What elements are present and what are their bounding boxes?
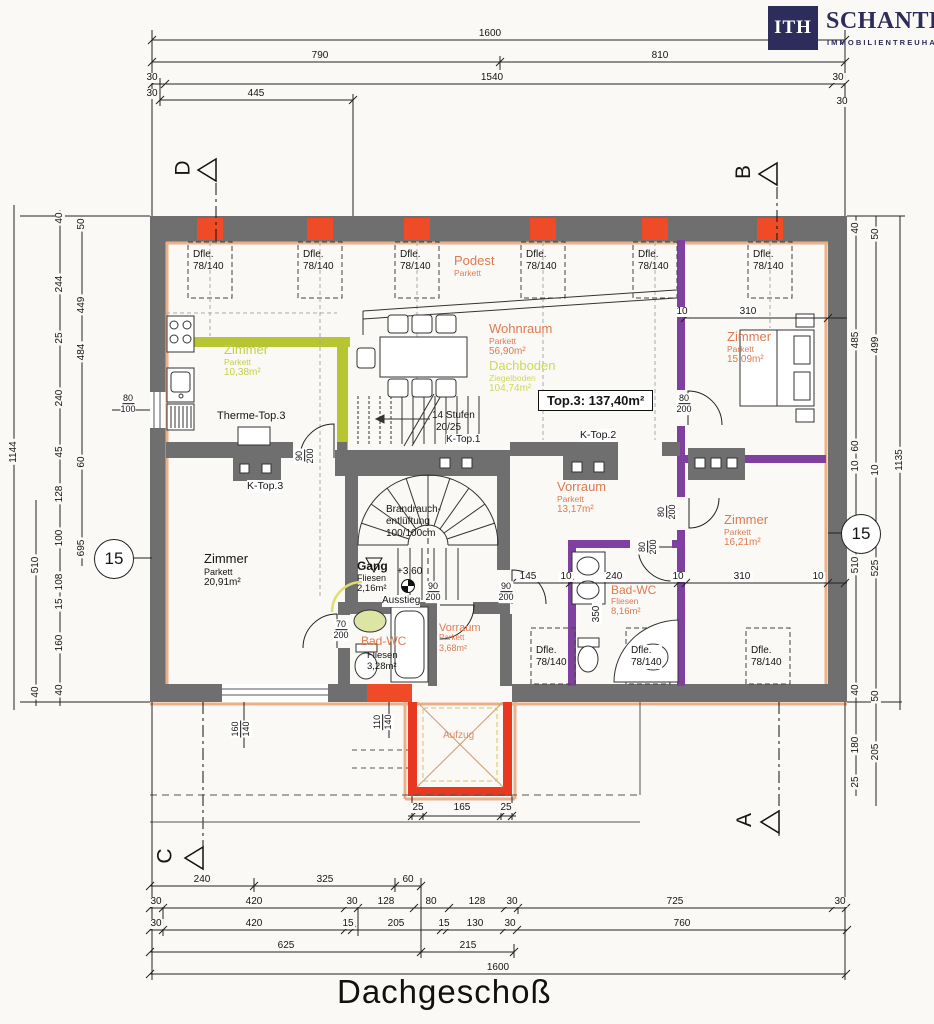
room-label-vorraum-1317: VorraumParkett13,17m² <box>557 480 606 515</box>
dim-label: 625 <box>276 941 297 951</box>
dim-label: 325 <box>315 875 336 885</box>
dim-label: 50 <box>871 688 881 703</box>
window-size-label: 110140 <box>372 714 394 730</box>
logo-name: SCHANTL <box>826 8 934 35</box>
window-label: Dfle.78/140 <box>751 645 782 669</box>
dim-label: 40 <box>31 684 41 699</box>
door-size-label: 90200 <box>294 448 316 463</box>
dimension-lines <box>14 30 905 980</box>
dim-label: 760 <box>672 919 693 929</box>
stairs-label: 14 Stufen20/25 <box>432 410 475 434</box>
ktop2-label: K-Top.2 <box>580 429 616 442</box>
window-label: Dfle.78/140 <box>193 249 224 273</box>
smoke-vent-label: Brandrauch-entlüftung100/100cm <box>386 504 441 540</box>
level-circle-left: 15 <box>94 539 134 579</box>
dim-label: 15 <box>340 919 355 929</box>
dim-label: 128 <box>55 484 65 505</box>
dim-label: 40 <box>851 220 861 235</box>
room-area-label: 3,28m² <box>367 661 397 672</box>
dim-label: 30 <box>148 919 163 929</box>
dim-label: 60 <box>400 875 415 885</box>
dim-label: 350 <box>592 604 602 625</box>
dim-label: 30 <box>832 897 847 907</box>
dim-label: 25 <box>410 803 425 813</box>
dim-label: 510 <box>851 555 861 576</box>
level-circle-right: 15 <box>841 514 881 554</box>
room-label-bad-328: Bad-WC <box>361 635 406 648</box>
room-label-zimmer-2091: ZimmerParkett20,91m² <box>204 552 248 588</box>
dim-label: 810 <box>650 51 671 61</box>
dim-label: 30 <box>830 73 845 83</box>
dim-label: 420 <box>244 919 265 929</box>
logo-mark: ITH <box>768 6 818 50</box>
section-marker-d: D <box>172 160 196 175</box>
dim-label: 30 <box>148 897 163 907</box>
dim-label: 165 <box>452 803 473 813</box>
dim-label: 215 <box>458 941 479 951</box>
window-label: Dfle.78/140 <box>536 645 567 669</box>
window-label: Dfle.78/140 <box>631 645 662 669</box>
dim-label: 484 <box>77 342 87 363</box>
dim-label: 128 <box>376 897 397 907</box>
room-label-podest: PodestParkett <box>454 254 494 278</box>
dim-label: 30 <box>834 97 849 107</box>
dim-label: 510 <box>31 555 41 576</box>
room-label-gang: GangFliesen2,16m² <box>357 560 388 594</box>
door-size-label: 90200 <box>498 581 513 603</box>
dim-label: 449 <box>77 295 87 316</box>
dim-label: 30 <box>144 73 159 83</box>
section-marker-c: C <box>154 848 178 863</box>
dim-label: 30 <box>144 89 159 99</box>
dim-label: 695 <box>77 538 87 559</box>
page-title: Dachgeschoß <box>337 973 552 1011</box>
room-label-bad-816: Bad-WCFliesen8,16m² <box>611 584 656 618</box>
dim-label: 80 <box>423 897 438 907</box>
door-size-label: 90200 <box>425 581 440 603</box>
ktop3-label: K-Top.3 <box>247 480 283 493</box>
dim-label: 45 <box>55 444 65 459</box>
dim-label: 1135 <box>895 447 905 473</box>
door-size-label: 70200 <box>333 619 348 641</box>
section-lines <box>203 183 779 858</box>
ktop1-label: K-Top.1 <box>446 434 480 446</box>
door-size-label: 80200 <box>656 504 678 519</box>
dim-label: 100 <box>55 528 65 549</box>
dim-label: 60 <box>851 438 861 453</box>
window-label: Dfle.78/140 <box>303 249 334 273</box>
floorplan-linework <box>0 0 934 1024</box>
dim-label: 1600 <box>477 29 503 39</box>
dim-label: 40 <box>851 682 861 697</box>
window-label: Dfle.78/140 <box>400 249 431 273</box>
room-label-wohnraum: WohnraumParkett56,90m² <box>489 322 552 357</box>
dim-label: 525 <box>871 558 881 579</box>
door-size-label: 80200 <box>637 539 659 554</box>
dim-label: 25 <box>851 774 861 789</box>
dim-label: 445 <box>246 89 267 99</box>
dim-label: 40 <box>55 210 65 225</box>
dim-label: 30 <box>502 919 517 929</box>
dim-label: 15 <box>436 919 451 929</box>
dim-label: 30 <box>504 897 519 907</box>
dim-label: 10 <box>871 462 881 477</box>
room-label-aufzug: Aufzug <box>443 730 474 742</box>
section-marker-a: A <box>733 813 757 827</box>
room-label-zimmer-1509: ZimmerParkett15,09m² <box>727 330 771 365</box>
dim-label: 725 <box>665 897 686 907</box>
dim-label: 499 <box>871 335 881 356</box>
room-label-zimmer-1038: ZimmerParkett10,38m² <box>224 343 268 378</box>
dim-label: 30 <box>344 897 359 907</box>
dim-label: 1144 <box>9 439 19 465</box>
dim-label: 240 <box>192 875 213 885</box>
window-label: Dfle.78/140 <box>526 249 557 273</box>
dim-label: 420 <box>244 897 265 907</box>
exit-label: Ausstieg <box>382 595 420 607</box>
window-size-label: 80100 <box>120 393 135 415</box>
dim-label: 10 <box>670 572 685 582</box>
dim-label: 10 <box>851 458 861 473</box>
dim-label: 790 <box>310 51 331 61</box>
dim-label: 108 <box>55 572 65 593</box>
room-label-dachboden: DachbodenZiegelboden104,74m² <box>489 359 556 394</box>
dim-label: 15 <box>55 596 65 611</box>
dim-label: 485 <box>851 330 861 351</box>
dim-label: 145 <box>518 572 539 582</box>
dim-label: 244 <box>55 274 65 295</box>
dim-label: 240 <box>55 388 65 409</box>
dim-label: 50 <box>871 226 881 241</box>
room-label-vorraum-368: VorraumParkett3,68m² <box>439 622 481 653</box>
dim-label: 60 <box>77 454 87 469</box>
dim-label: 180 <box>851 735 861 756</box>
dim-label: 130 <box>465 919 486 929</box>
dim-label: 10 <box>674 307 689 317</box>
dim-label: 1540 <box>479 73 505 83</box>
window-label: Dfle.78/140 <box>638 249 669 273</box>
dim-label: 10 <box>558 572 573 582</box>
logo-subtitle: IMMOBILIENTREUHAND <box>827 38 934 47</box>
window-size-label: 160140 <box>230 720 252 737</box>
dim-label: 128 <box>467 897 488 907</box>
dim-label: 10 <box>810 572 825 582</box>
dim-label: 1600 <box>485 963 511 973</box>
therme-label: Therme-Top.3 <box>217 410 285 423</box>
dim-label: 205 <box>871 742 881 763</box>
door-size-label: 80200 <box>676 393 691 415</box>
dim-label: 205 <box>386 919 407 929</box>
terrace-lines <box>150 702 640 822</box>
elevator-cross <box>417 702 503 787</box>
dim-label: 160 <box>55 633 65 654</box>
floorplan-page: ITH SCHANTL IMMOBILIENTREUHAND 1600 790 … <box>0 0 934 1024</box>
dim-label: 40 <box>55 682 65 697</box>
level-label: +3,60 <box>397 566 422 578</box>
dim-label: 25 <box>55 330 65 345</box>
dim-label: 50 <box>77 216 87 231</box>
unit-area-box: Top.3: 137,40m² <box>538 390 653 411</box>
room-floor-label: Fliesen <box>367 650 398 661</box>
elevator-walls <box>408 702 512 796</box>
dim-label: 240 <box>604 572 625 582</box>
section-marker-b: B <box>732 165 756 179</box>
room-label-zimmer-1621: ZimmerParkett16,21m² <box>724 513 768 548</box>
dim-label: 25 <box>498 803 513 813</box>
window-label: Dfle.78/140 <box>753 249 784 273</box>
dim-label: 310 <box>732 572 753 582</box>
dim-label: 310 <box>738 307 759 317</box>
